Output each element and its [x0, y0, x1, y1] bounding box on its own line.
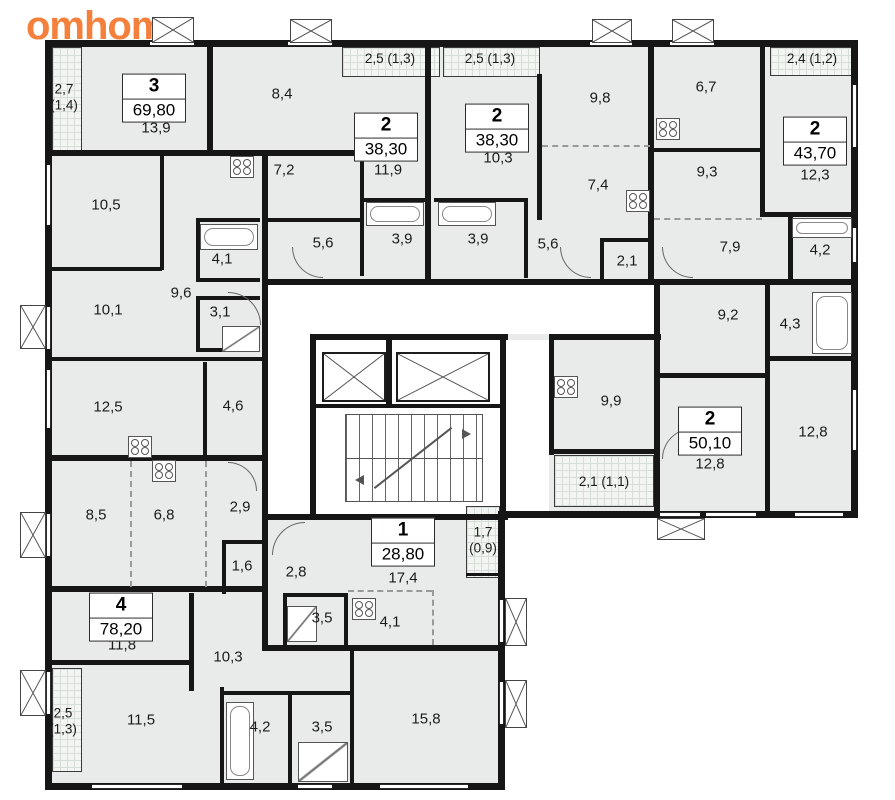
dashed-wall — [348, 590, 432, 592]
wall — [262, 519, 268, 651]
room-area-label: 9,9 — [601, 392, 622, 409]
stove-icon — [626, 190, 650, 212]
wall — [386, 340, 392, 406]
apartment-total-area: 50,10 — [679, 432, 741, 454]
french-balcony-icon — [152, 17, 194, 43]
apartment-total-area: 38,30 — [466, 129, 528, 151]
stove-icon — [656, 118, 680, 140]
wall — [425, 40, 431, 285]
window — [46, 307, 51, 349]
wall — [760, 40, 765, 216]
room-area-label: 9,6 — [171, 284, 192, 301]
wall — [350, 695, 354, 785]
french-balcony-icon — [657, 518, 705, 540]
apartment-rooms-count: 4 — [90, 594, 152, 619]
apartment-total-area: 38,30 — [355, 138, 417, 160]
bathtub-icon — [226, 702, 254, 780]
apartment-badge[interactable]: 2 38,30 — [354, 113, 418, 162]
wall — [196, 296, 200, 352]
wall — [344, 593, 348, 647]
room-area-label: 5,6 — [313, 234, 334, 251]
window — [706, 512, 756, 517]
wall — [207, 40, 213, 156]
balcony-area-label: 2,1 (1,1) — [579, 474, 629, 490]
apartment-total-area: 28,80 — [372, 543, 434, 565]
shower-icon — [298, 742, 348, 782]
window — [46, 514, 51, 556]
window — [380, 784, 468, 789]
room-area-label: 7,4 — [588, 176, 609, 193]
window — [852, 228, 857, 262]
staircase-icon — [345, 414, 483, 502]
wall — [316, 404, 506, 408]
room-area-label: 7,2 — [274, 161, 295, 178]
wall — [262, 279, 852, 285]
balcony-area-label: 2,5 (1,3) — [465, 51, 515, 67]
wall — [48, 267, 162, 271]
apartment-rooms-count: 2 — [355, 114, 417, 139]
corridor-extension — [506, 340, 549, 511]
room-area-label: 5,6 — [538, 235, 559, 252]
apartment-total-area: 69,80 — [123, 99, 185, 121]
stove-icon — [554, 376, 578, 398]
bathtub-icon — [438, 202, 496, 226]
wall — [220, 691, 354, 695]
wall — [48, 357, 266, 361]
wall — [654, 285, 660, 511]
stairs-direction-arrow — [350, 475, 364, 485]
wall — [360, 202, 364, 276]
french-balcony-icon — [505, 598, 527, 646]
stove-icon — [152, 460, 176, 482]
room-area-label: 1,6 — [232, 557, 253, 574]
window — [298, 784, 332, 789]
apartment-badge[interactable]: 4 78,20 — [89, 593, 153, 642]
corridor — [268, 285, 654, 334]
room-area-label: 9,3 — [697, 163, 718, 180]
room-area-label: 12,3 — [800, 166, 829, 183]
wall — [537, 74, 542, 220]
wall — [310, 334, 316, 520]
wall — [316, 334, 508, 340]
balcony-area-label: 2,5 (1,3) — [49, 705, 77, 736]
wall — [500, 334, 506, 520]
wall — [160, 156, 164, 270]
room-area-label: 4,3 — [780, 315, 801, 332]
bathtub-icon — [792, 218, 852, 238]
balcony-area-label: 2,7 (1,4) — [50, 81, 78, 112]
room-area-label: 10,1 — [93, 301, 122, 318]
french-balcony-icon — [672, 19, 714, 43]
room-area-label: 8,4 — [272, 85, 293, 102]
french-balcony-icon — [592, 19, 632, 43]
wall — [600, 238, 604, 281]
wall — [765, 356, 856, 361]
apartment-badge[interactable]: 2 38,30 — [465, 104, 529, 153]
room-area-label: 6,8 — [154, 506, 175, 523]
room-area-label: 2,8 — [286, 563, 307, 580]
apartment-badge[interactable]: 2 50,10 — [678, 407, 742, 456]
wall — [524, 202, 528, 278]
wall — [648, 40, 654, 285]
lobby — [268, 285, 310, 514]
wall — [760, 212, 856, 217]
window — [46, 165, 51, 225]
window — [852, 85, 857, 147]
apartment-total-area: 43,70 — [784, 142, 846, 164]
room-area-label: 4,2 — [250, 718, 271, 735]
french-balcony-icon — [505, 680, 527, 728]
room-area-label: 2,1 — [617, 252, 638, 269]
french-balcony-icon — [290, 19, 332, 43]
wall — [222, 540, 264, 544]
room-area-label: 12,8 — [695, 455, 724, 472]
wall — [196, 218, 260, 222]
room-area-label: 9,8 — [590, 89, 611, 106]
room-area-label: 3,5 — [312, 609, 333, 626]
room-area-label: 10,5 — [91, 196, 120, 213]
wall — [549, 449, 656, 454]
stairs-direction-arrow — [462, 429, 476, 439]
wall — [262, 645, 502, 651]
room-area-label: 10,3 — [213, 648, 242, 665]
window — [660, 512, 700, 517]
wall — [654, 373, 765, 378]
apartment-rooms-count: 3 — [123, 75, 185, 100]
room-area-label: 3,5 — [312, 718, 333, 735]
wall — [48, 150, 210, 156]
apartment-rooms-count: 2 — [679, 408, 741, 433]
wall — [350, 651, 354, 695]
room-area-label: 2,9 — [230, 498, 251, 515]
bathtub-icon — [366, 202, 424, 226]
room-area-label: 9,2 — [718, 306, 739, 323]
apartment-rooms-count: 2 — [784, 118, 846, 143]
stove-icon — [128, 436, 152, 458]
room-area-label: 4,1 — [212, 250, 233, 267]
room-area-label: 8,5 — [86, 506, 107, 523]
room-area-label: 4,1 — [380, 613, 401, 630]
balcony-area-label: 1,7 (0,9) — [469, 524, 497, 555]
floor-plan: omhome — [0, 0, 895, 800]
stove-icon — [352, 598, 376, 620]
wall — [498, 518, 505, 790]
room-area-label: 6,7 — [696, 78, 717, 95]
bathtub-icon — [812, 292, 852, 354]
wall — [48, 660, 190, 665]
room-area-label: 4,6 — [223, 397, 244, 414]
wall — [283, 593, 348, 597]
wall — [654, 148, 761, 152]
wall — [268, 218, 362, 222]
wall — [600, 238, 650, 242]
wall — [48, 586, 266, 592]
window — [92, 784, 182, 789]
window — [46, 370, 51, 428]
french-balcony-icon — [20, 670, 46, 716]
elevator-shaft-icon — [396, 352, 490, 402]
french-balcony-icon — [20, 512, 46, 558]
room-area-label: 15,8 — [411, 710, 440, 727]
wall — [203, 362, 207, 455]
wall — [189, 593, 194, 691]
apartment-rooms-count: 2 — [466, 105, 528, 130]
wall — [222, 540, 226, 594]
dashed-wall — [205, 461, 207, 587]
wall — [765, 285, 770, 511]
room-area-label: 11,5 — [127, 711, 155, 728]
balcony-area-label: 2,5 (1,3) — [365, 51, 415, 67]
room-area-label: 12,5 — [93, 398, 122, 415]
wall — [549, 334, 661, 340]
window — [499, 600, 504, 642]
wall — [196, 278, 260, 282]
room-area-label: 7,9 — [720, 238, 741, 255]
wall — [466, 573, 500, 576]
french-balcony-icon — [20, 305, 46, 349]
dashed-wall — [542, 145, 650, 147]
dashed-wall — [432, 590, 434, 645]
wall — [262, 155, 268, 519]
stove-icon — [230, 156, 254, 178]
dashed-wall — [130, 461, 132, 587]
apartment-rooms-count: 1 — [372, 519, 434, 544]
window — [499, 682, 504, 724]
window — [852, 390, 857, 450]
apartment-total-area: 78,20 — [90, 618, 152, 640]
room-area-label: 3,1 — [210, 303, 231, 320]
window — [795, 512, 843, 517]
apartment-badge[interactable]: 1 28,80 — [371, 518, 435, 567]
room-area-label: 17,4 — [388, 569, 417, 586]
bathtub-icon — [200, 224, 258, 250]
wall — [220, 687, 224, 785]
room-area-label: 3,9 — [468, 230, 489, 247]
apartment-badge[interactable]: 3 69,80 — [122, 74, 186, 123]
room-area-label: 4,2 — [810, 241, 831, 258]
room-area-label: 11,9 — [374, 161, 402, 178]
shower-icon — [222, 326, 260, 352]
dashed-wall — [654, 218, 762, 220]
stairs-section-line — [374, 427, 452, 489]
balcony-area-label: 2,4 (1,2) — [787, 51, 837, 67]
room-area-label: 12,8 — [798, 423, 827, 440]
room-area-label: 3,9 — [392, 230, 413, 247]
wall — [288, 695, 292, 785]
elevator-shaft-icon — [322, 352, 386, 402]
apartment-badge[interactable]: 2 43,70 — [783, 117, 847, 166]
